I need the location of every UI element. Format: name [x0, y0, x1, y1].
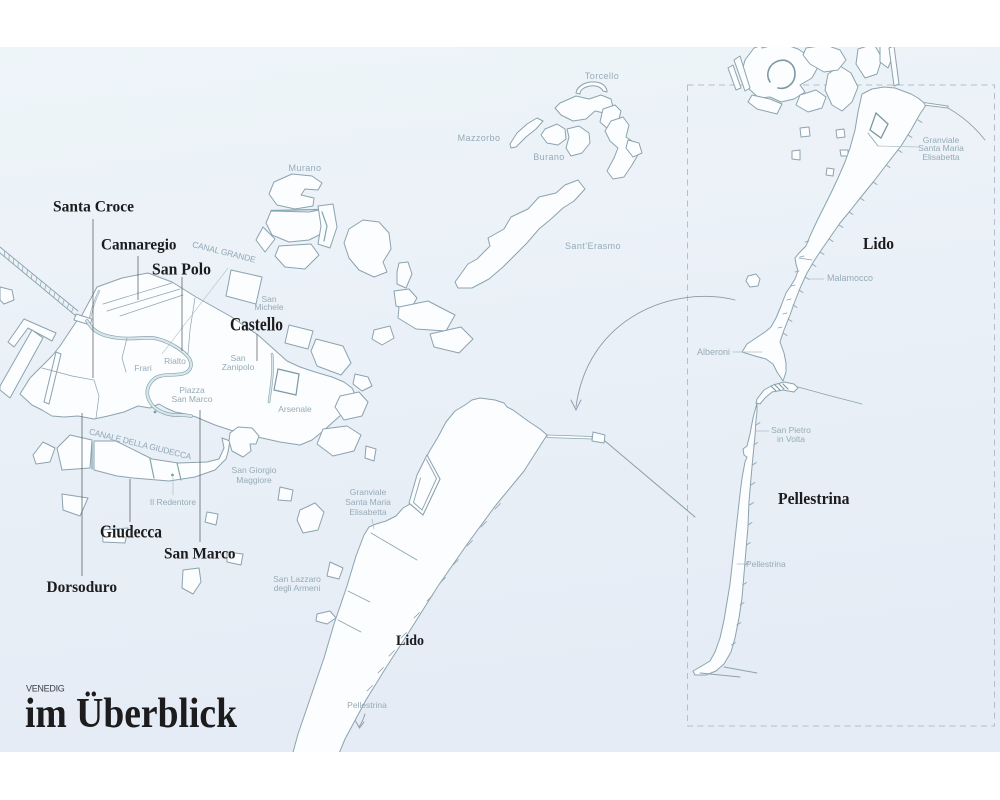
svg-text:Pellestrina: Pellestrina	[746, 559, 786, 569]
svg-text:San Giorgio: San Giorgio	[232, 465, 277, 475]
svg-text:Elisabetta: Elisabetta	[349, 507, 387, 517]
svg-text:Maggiore: Maggiore	[236, 475, 272, 485]
svg-text:Santa Maria: Santa Maria	[345, 497, 391, 507]
svg-text:Granviale: Granviale	[350, 487, 387, 497]
svg-text:Alberoni: Alberoni	[697, 347, 730, 357]
svg-text:degli Armeni: degli Armeni	[274, 583, 321, 593]
svg-text:San Polo: San Polo	[152, 260, 211, 279]
svg-text:Sant’Erasmo: Sant’Erasmo	[565, 241, 621, 251]
svg-text:Cannaregio: Cannaregio	[101, 237, 177, 254]
svg-text:in Volta: in Volta	[777, 434, 805, 444]
svg-text:Arsenale: Arsenale	[278, 404, 312, 414]
svg-text:Burano: Burano	[533, 152, 564, 162]
svg-text:Zanipolo: Zanipolo	[222, 362, 255, 372]
svg-text:Lido: Lido	[863, 234, 894, 253]
svg-text:San Marco: San Marco	[164, 546, 236, 563]
svg-text:Giudecca: Giudecca	[100, 522, 162, 542]
svg-text:Torcello: Torcello	[585, 71, 619, 81]
svg-text:San Marco: San Marco	[171, 394, 212, 404]
svg-text:Malamocco: Malamocco	[827, 273, 873, 283]
svg-text:Santa Croce: Santa Croce	[53, 199, 134, 216]
svg-text:Castello: Castello	[230, 315, 283, 336]
svg-text:Michele: Michele	[254, 302, 284, 312]
svg-text:Murano: Murano	[289, 163, 322, 173]
svg-text:Rialto: Rialto	[164, 356, 186, 366]
svg-text:Frari: Frari	[134, 363, 152, 373]
svg-text:Elisabetta: Elisabetta	[922, 152, 960, 162]
svg-text:Lido: Lido	[396, 633, 424, 649]
svg-text:Pellestrina: Pellestrina	[347, 700, 387, 710]
svg-text:im Überblick: im Überblick	[25, 691, 238, 737]
svg-text:Pellestrina: Pellestrina	[778, 489, 850, 508]
svg-text:Mazzorbo: Mazzorbo	[458, 133, 501, 143]
svg-text:Il Redentore: Il Redentore	[150, 497, 197, 507]
svg-text:Dorsoduro: Dorsoduro	[47, 579, 118, 596]
